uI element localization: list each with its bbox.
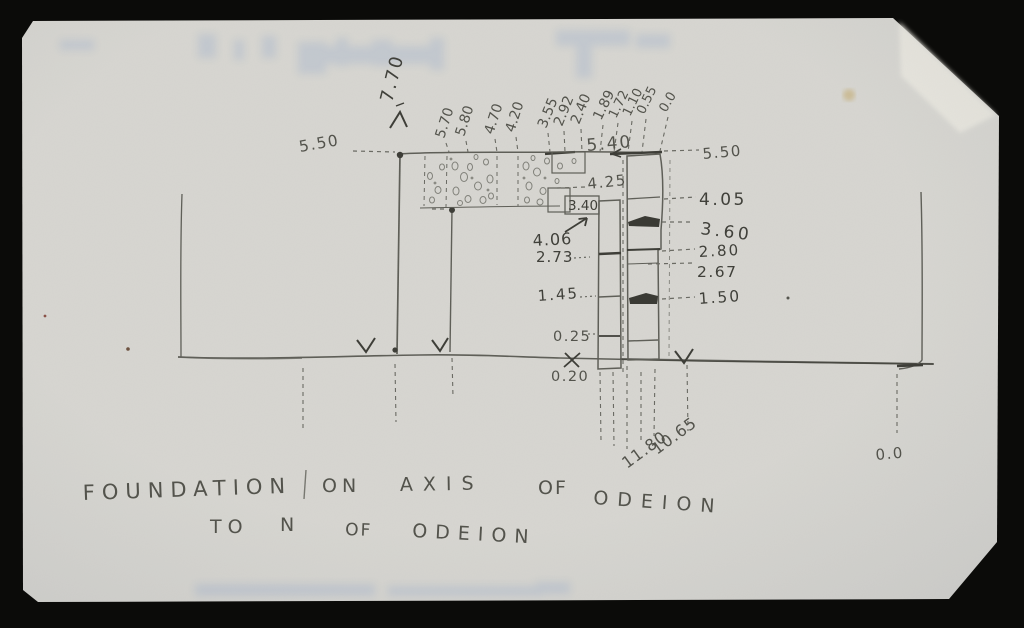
elevation-label-mid: 3.40 xyxy=(568,198,598,214)
elevation-label-mid: 5.40 xyxy=(586,132,633,156)
elevation-label-mid: 1.45 xyxy=(537,284,580,305)
sketch-canvas: 7.70 5.70 5.80 4.70 4.20 3.55 2.92 2.40 … xyxy=(0,0,1024,628)
elevation-label-mid: 0.20 xyxy=(551,369,589,385)
datum-label: 0.0 xyxy=(875,444,905,464)
elevation-label-mid: 0.25 xyxy=(553,329,591,345)
caption-word: AXIS xyxy=(400,473,484,496)
paper-speck xyxy=(126,347,130,351)
paper-speck xyxy=(787,297,790,300)
caption-word: OF xyxy=(538,477,568,499)
caption-word: OF xyxy=(345,520,373,541)
elevation-label-right: 4.05 xyxy=(699,190,747,210)
elevation-label-right: 1.50 xyxy=(698,287,742,308)
caption-word: TO xyxy=(209,516,249,538)
paper-stain xyxy=(843,89,855,101)
elevation-label-mid: 2.73 xyxy=(536,248,573,266)
elevation-label-right: 2.67 xyxy=(697,263,738,281)
photographed-sketch: 7.70 5.70 5.80 4.70 4.20 3.55 2.92 2.40 … xyxy=(0,0,1024,628)
caption-word: N xyxy=(280,514,294,536)
elevation-label-right: 5.50 xyxy=(702,142,743,163)
elevation-label-mid: 4.06 xyxy=(532,229,573,250)
caption-word: ON xyxy=(322,475,361,497)
paper-speck xyxy=(44,315,47,318)
elevation-label-right: 2.80 xyxy=(698,241,740,261)
